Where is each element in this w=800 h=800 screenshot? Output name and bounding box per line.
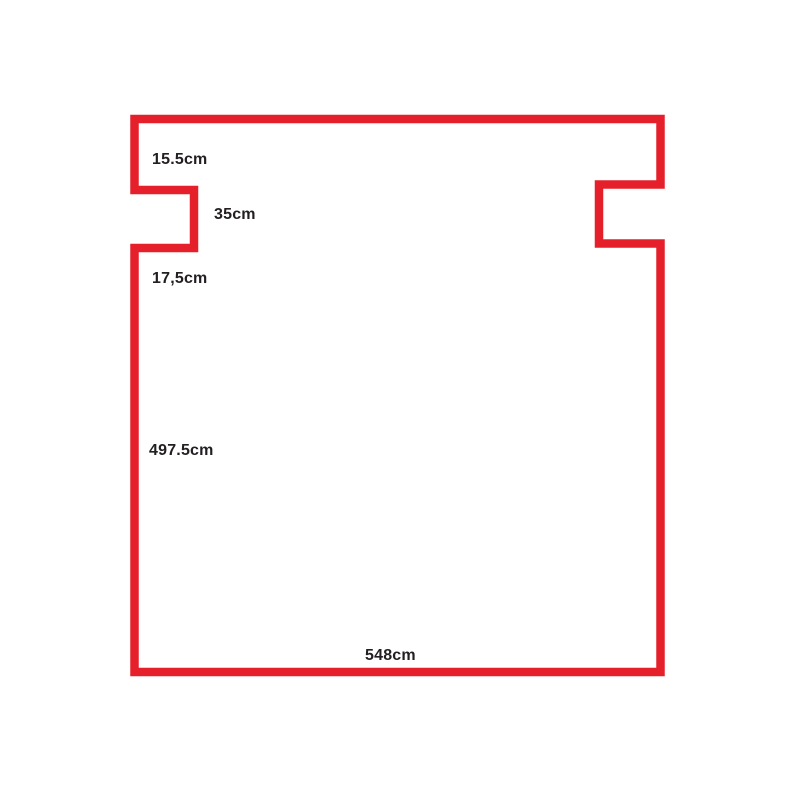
dimension-label-upper-left-wall: 15.5cm	[152, 152, 207, 168]
dimension-label-left-notch: 35cm	[214, 207, 256, 223]
floor-plan-drawing	[0, 0, 800, 800]
diagram-canvas: 15.5cm 35cm 17,5cm 497.5cm 548cm	[0, 0, 800, 800]
dimension-label-left-wall-main: 497.5cm	[149, 443, 214, 459]
dimension-label-bottom-wall: 548cm	[365, 648, 416, 664]
dimension-label-below-left-notch: 17,5cm	[152, 271, 207, 287]
room-outline-path	[135, 119, 661, 672]
